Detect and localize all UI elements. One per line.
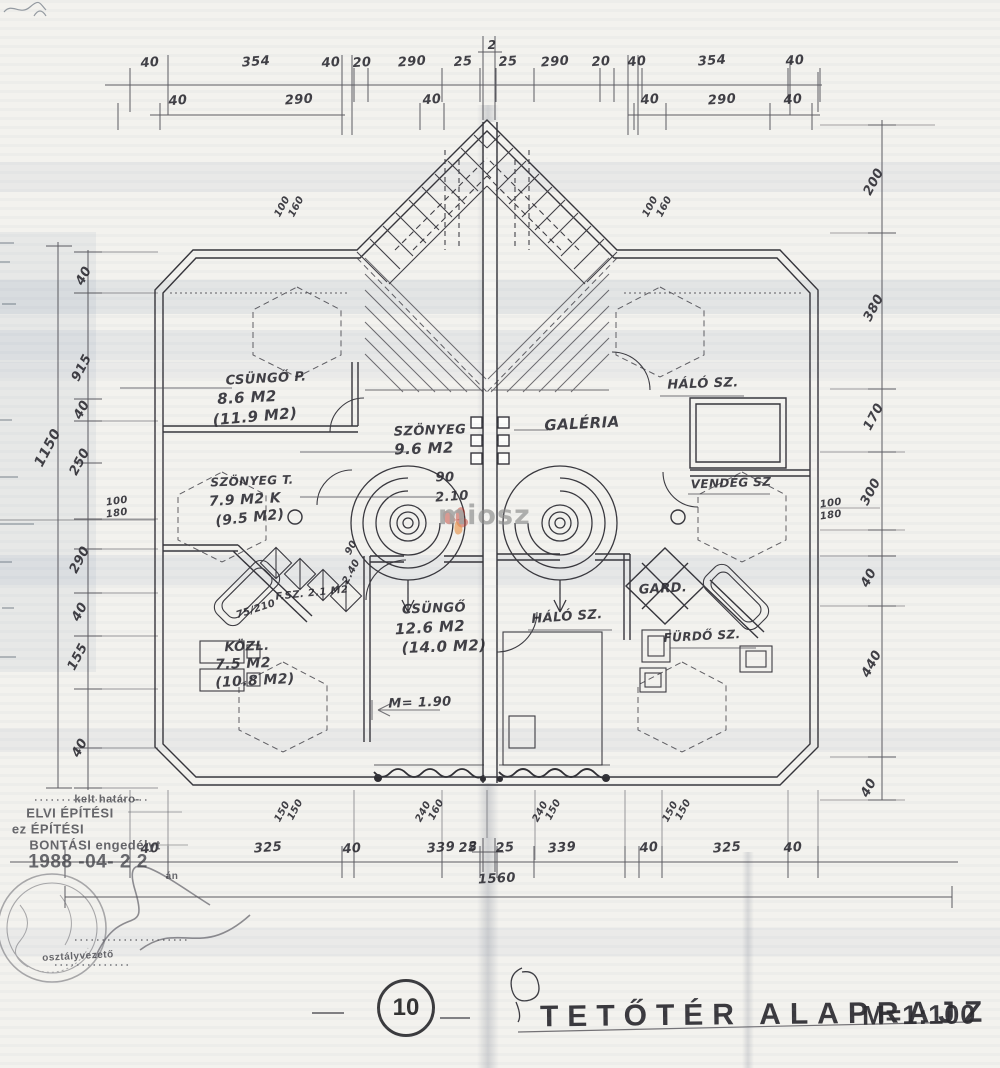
room-area-kozl: 7.5 M2: [215, 656, 271, 672]
room-label-vendeg: VENDÉG SZ: [690, 476, 771, 491]
door-note-90b: 90: [344, 539, 360, 557]
stamp-kelt: kelt határo-: [74, 795, 139, 806]
dim-top1-20b: 20: [591, 55, 611, 69]
headroom-note: M= 1.90: [388, 695, 452, 710]
section-mark-top: 2: [488, 39, 497, 51]
window-bottom-150c: 150: [544, 798, 563, 822]
stamp-date: 1988 -04- 2 2: [28, 853, 148, 872]
window-bottom-160a: 160: [427, 798, 446, 822]
stamp-bontasi: BONTÁSI engedélyt: [29, 839, 160, 852]
room-label-fsz: F.SZ. 2.1 M2: [275, 585, 349, 603]
blueprint-scan-page: 4035440202902525290204035440402904040290…: [0, 0, 1000, 1068]
room-label-szonyeg-t: SZÖNYEG T.: [210, 474, 294, 489]
dim-left-40a: 40: [74, 265, 94, 288]
dim-top2-40b: 40: [422, 93, 442, 108]
dim-bottom-40b: 40: [342, 842, 362, 857]
dim-left-40d: 40: [70, 737, 90, 760]
dim-top1-354a: 354: [241, 55, 270, 70]
room-label-csungo2: CSÜNGŐ: [402, 601, 466, 616]
stamp-elvi: ELVI ÉPÍTÉSI: [26, 807, 113, 820]
room-label-furdo: FÜRDŐ SZ.: [663, 628, 741, 644]
dim-top1-40a: 40: [140, 56, 160, 71]
stamp-ez: ez ÉPÍTÉSI: [12, 823, 84, 836]
window-bottom-150b: 150: [286, 798, 305, 822]
stamp-date-suffix: án: [166, 872, 179, 882]
dim-bottom-25a: 25: [458, 841, 478, 855]
room-area-szonyeg-t: 7.9 M2 K: [209, 491, 282, 509]
window-bottom-150e: 150: [674, 798, 693, 822]
room-area2-kozl: (10.8 M2): [215, 672, 295, 690]
room-area2-csungo2: (14.0 M2): [401, 638, 486, 656]
room-label-gard: GARD.: [638, 581, 687, 597]
dim-bottom-339a: 339: [426, 841, 455, 856]
stamp-signer: osztályvezető: [42, 950, 114, 964]
dim-top1-290a: 290: [397, 55, 426, 70]
room-label-halo-mid: HÁLÓ SZ.: [531, 608, 603, 626]
sheet-number-badge: 10: [377, 979, 435, 1037]
room-area-szonyeg: 9.6 M2: [394, 440, 454, 457]
room-label-kozl: KÖZL.: [224, 640, 269, 655]
dim-bottom-1560: 1560: [478, 872, 516, 887]
room-area-csungo2: 12.6 M2: [394, 619, 465, 638]
dim-left-250: 250: [68, 446, 93, 477]
dim-top1-40d: 40: [785, 54, 805, 69]
dim-right-40b: 40: [859, 777, 879, 800]
dim-bottom-40c: 40: [639, 841, 659, 856]
dim-top1-354b: 354: [697, 54, 726, 69]
dim-top2-290a: 290: [284, 93, 313, 108]
dim-right-380: 380: [862, 292, 887, 323]
dim-top1-40c: 40: [627, 55, 647, 70]
dim-top2-40d: 40: [783, 93, 803, 108]
room-label-halo-top: HÁLÓ SZ.: [667, 376, 739, 391]
door-note-240b: 2.40: [341, 558, 362, 586]
dim-bottom-325b: 325: [712, 841, 741, 856]
room-area2-szonyeg-t: (9.5 M2): [215, 507, 285, 528]
watermark: miosz: [438, 500, 531, 531]
dim-right-200: 200: [862, 166, 887, 197]
sheet-number: 10: [393, 994, 420, 1022]
drawing-scale: M=1:100: [862, 999, 977, 1031]
room-label-csungo-p: CSÜNGŐ P.: [225, 370, 306, 387]
dim-left-40b: 40: [72, 399, 92, 422]
dim-left-1150: 1150: [32, 427, 63, 469]
room-area-csungo-p: 8.6 M2: [217, 389, 277, 407]
dim-top1-290b: 290: [540, 55, 569, 70]
door-note-90: 90: [436, 472, 455, 485]
dim-right-170: 170: [862, 401, 887, 432]
dim-top2-40c: 40: [640, 93, 660, 108]
dim-right-40a: 40: [859, 567, 879, 590]
dim-right-300: 300: [859, 476, 884, 507]
dim-top2-290b: 290: [707, 93, 736, 108]
room-area2-csungo-p: (11.9 M2): [212, 406, 298, 428]
dim-bottom-339b: 339: [547, 841, 576, 856]
dim-top1-20a: 20: [352, 56, 372, 70]
dim-top2-40a: 40: [168, 94, 188, 109]
room-label-galeria: GALÉRIA: [544, 415, 620, 434]
dim-top1-40b: 40: [321, 56, 341, 71]
dim-bottom-325a: 325: [253, 841, 282, 856]
dim-left-155: 155: [66, 641, 91, 672]
watermark-text: miosz: [438, 500, 531, 531]
dim-bottom-25b: 25: [495, 841, 515, 855]
room-label-szonyeg: SZÖNYEG: [394, 423, 467, 439]
dim-bottom-40d: 40: [783, 841, 803, 856]
dim-left-915: 915: [70, 352, 95, 383]
dim-right-440: 440: [860, 648, 885, 679]
annotation-layer: 4035440202902525290204035440402904040290…: [0, 0, 1000, 1068]
dim-top1-25a: 25: [453, 55, 473, 69]
dim-left-290: 290: [68, 544, 93, 575]
door-note-75-210: 75/210: [235, 599, 277, 621]
dim-left-40c: 40: [70, 601, 90, 624]
dim-right-180: 180: [819, 510, 842, 523]
dim-left-180: 180: [105, 508, 128, 521]
dim-top1-25b: 25: [498, 55, 518, 69]
